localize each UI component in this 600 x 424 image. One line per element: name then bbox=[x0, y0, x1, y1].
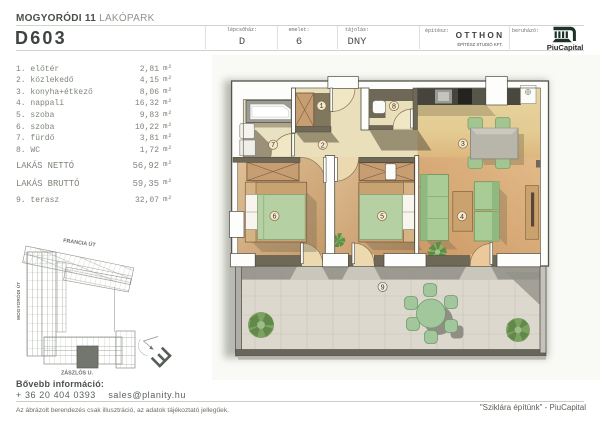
svg-text:9: 9 bbox=[380, 284, 384, 292]
svg-text:5: 5 bbox=[380, 214, 384, 222]
svg-text:8: 8 bbox=[392, 104, 396, 112]
svg-text:1: 1 bbox=[319, 103, 323, 111]
svg-text:6: 6 bbox=[272, 214, 276, 222]
svg-text:3: 3 bbox=[461, 141, 465, 149]
svg-text:2: 2 bbox=[321, 142, 325, 150]
svg-text:4: 4 bbox=[460, 214, 464, 222]
svg-text:7: 7 bbox=[271, 142, 275, 150]
